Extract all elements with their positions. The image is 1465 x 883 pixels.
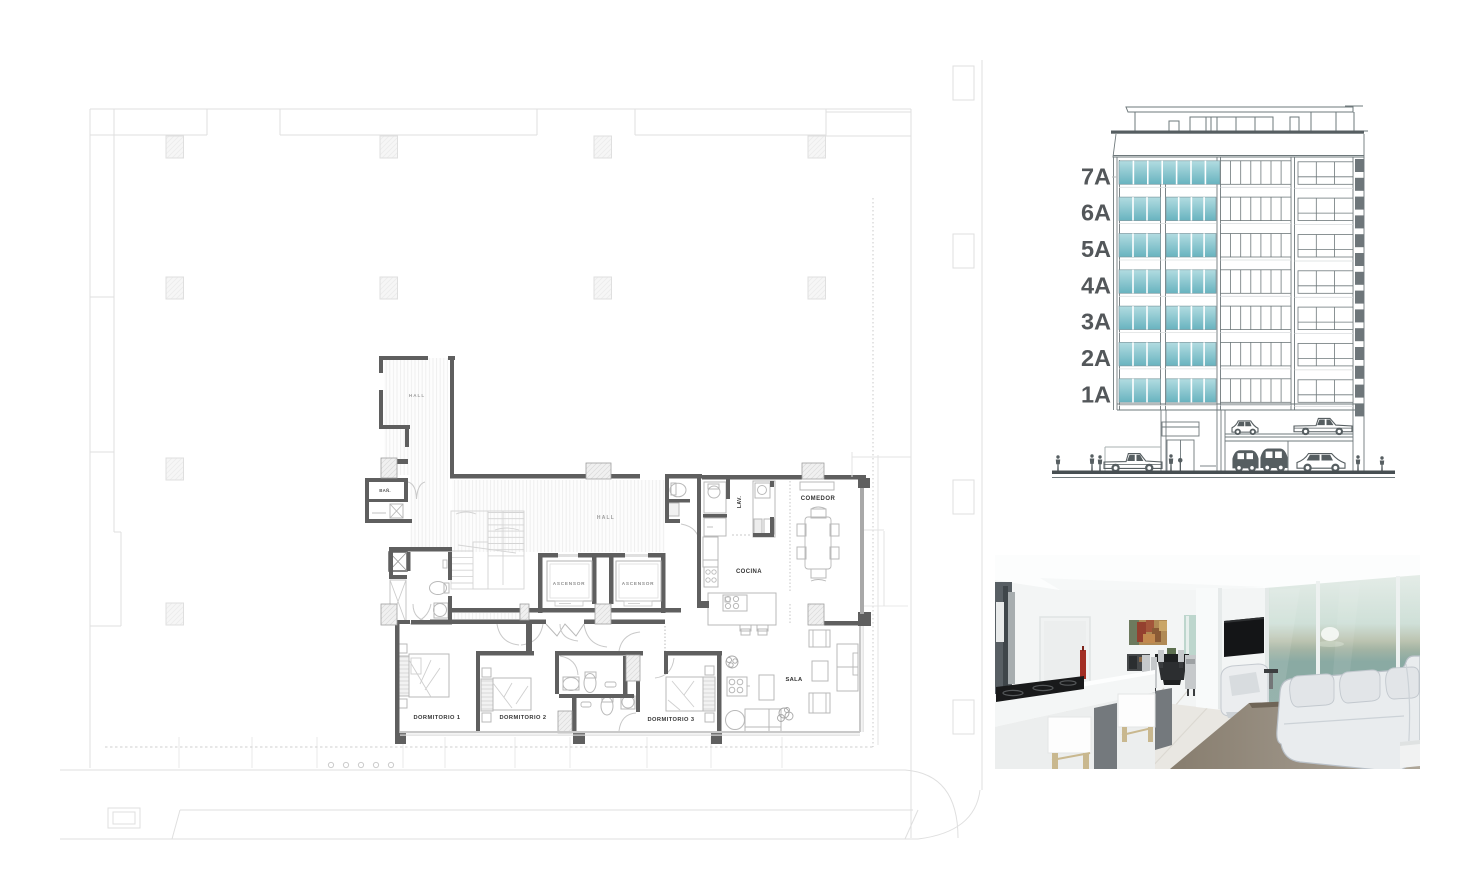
svg-text:DORMITORIO 3: DORMITORIO 3 [647,717,694,723]
svg-text:2A: 2A [1081,345,1111,371]
svg-text:COCINA: COCINA [736,569,762,575]
svg-text:BAÑ.: BAÑ. [379,488,391,493]
svg-text:5A: 5A [1081,236,1111,262]
svg-text:3A: 3A [1081,309,1111,335]
svg-text:ASCENSOR: ASCENSOR [622,581,655,586]
svg-text:HALL: HALL [409,393,425,398]
svg-text:DORMITORIO 1: DORMITORIO 1 [413,715,460,721]
svg-text:1A: 1A [1081,381,1111,407]
svg-text:SALA: SALA [786,677,803,683]
svg-text:4A: 4A [1081,272,1111,298]
svg-text:DORMITORIO 2: DORMITORIO 2 [499,715,546,721]
svg-text:HALL: HALL [597,515,615,521]
svg-text:ASCENSOR: ASCENSOR [553,581,586,586]
svg-text:LAV.: LAV. [737,496,743,508]
svg-text:COMEDOR: COMEDOR [801,496,836,502]
svg-text:7A: 7A [1081,163,1111,189]
svg-text:6A: 6A [1081,200,1111,226]
